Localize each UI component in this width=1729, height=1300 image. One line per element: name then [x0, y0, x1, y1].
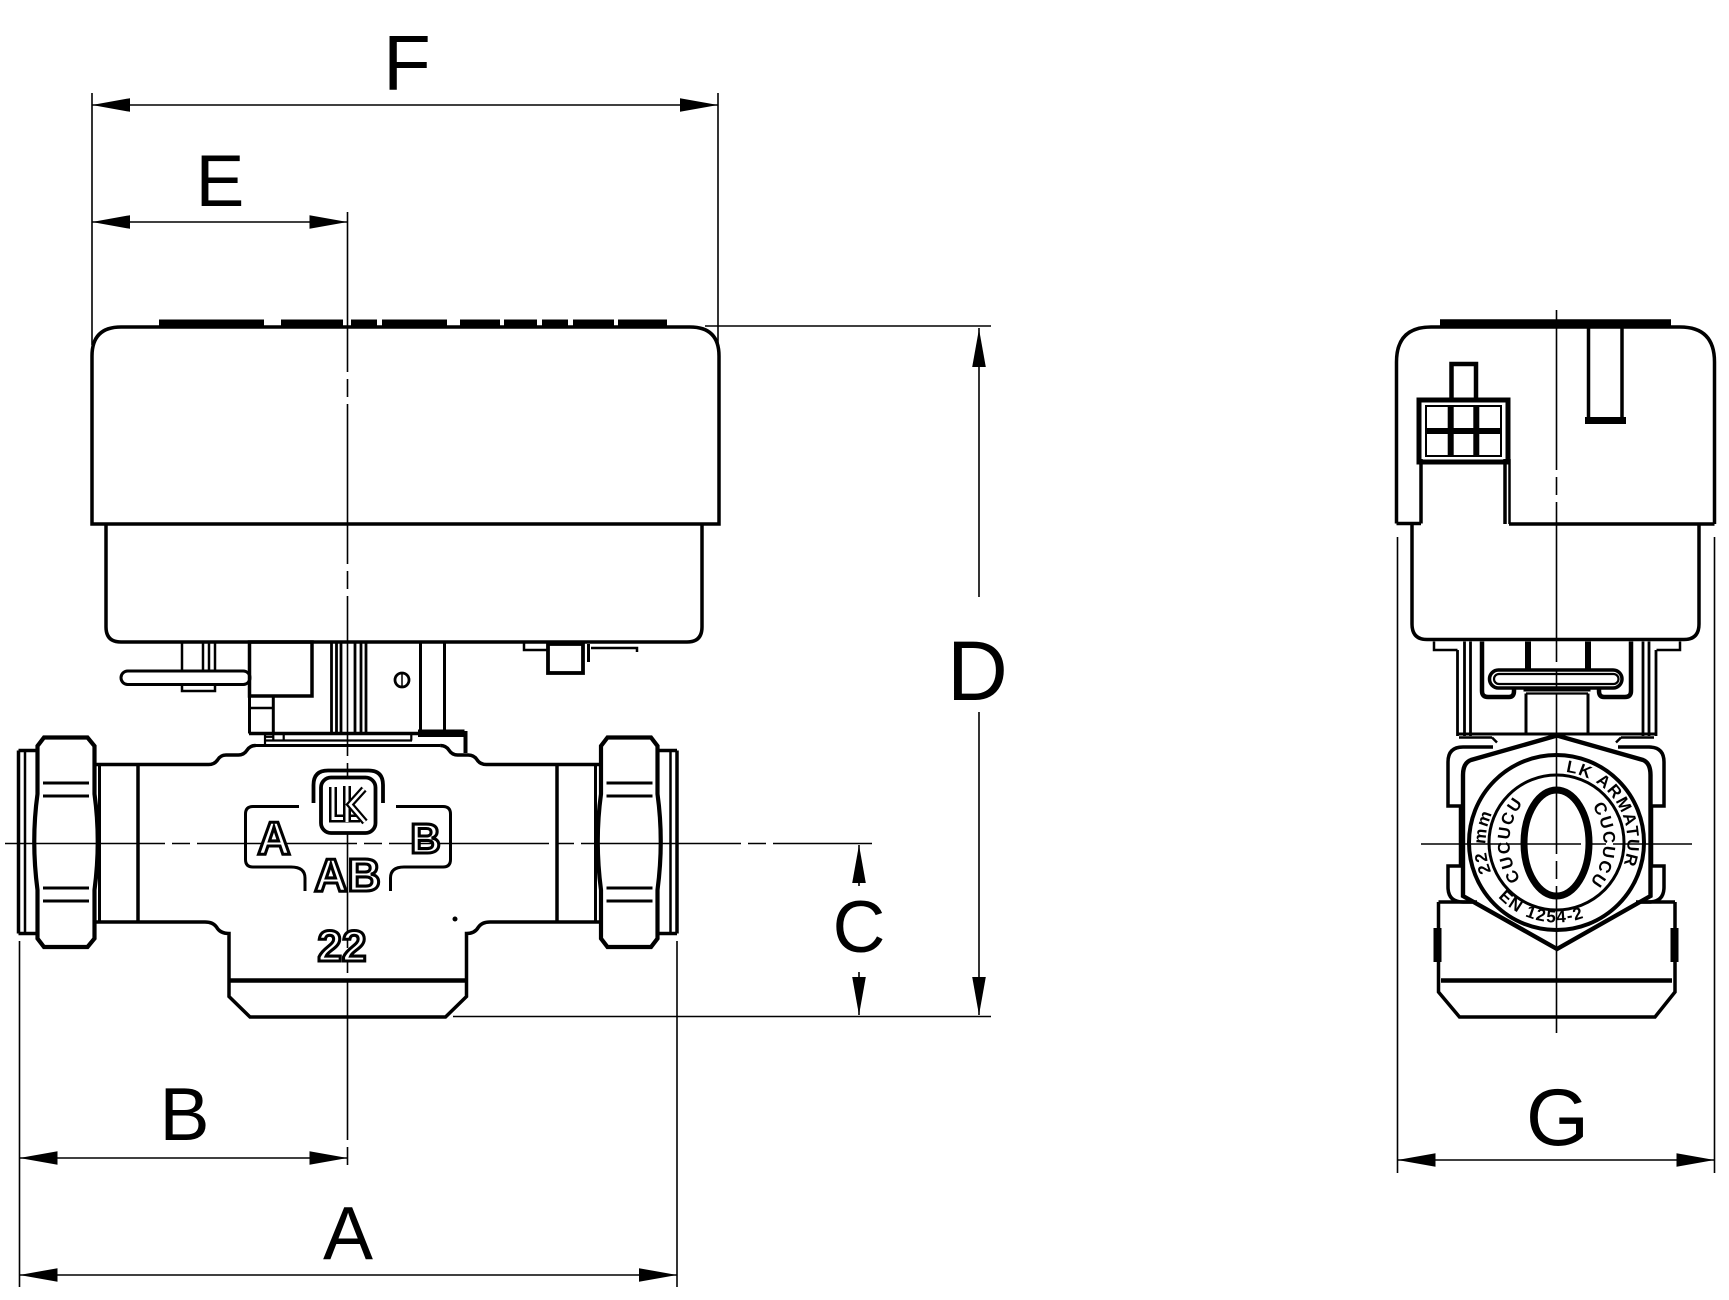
svg-text:E: E [196, 141, 245, 222]
svg-text:F: F [383, 19, 431, 107]
svg-text:B: B [410, 815, 440, 862]
svg-text:22: 22 [318, 922, 367, 971]
svg-text:D: D [947, 624, 1008, 718]
svg-text:A: A [257, 812, 290, 864]
svg-text:B: B [159, 1072, 209, 1156]
svg-text:C: C [833, 887, 886, 968]
svg-text:A: A [323, 1191, 373, 1275]
svg-text:AB: AB [314, 849, 380, 901]
svg-text:G: G [1526, 1073, 1589, 1163]
